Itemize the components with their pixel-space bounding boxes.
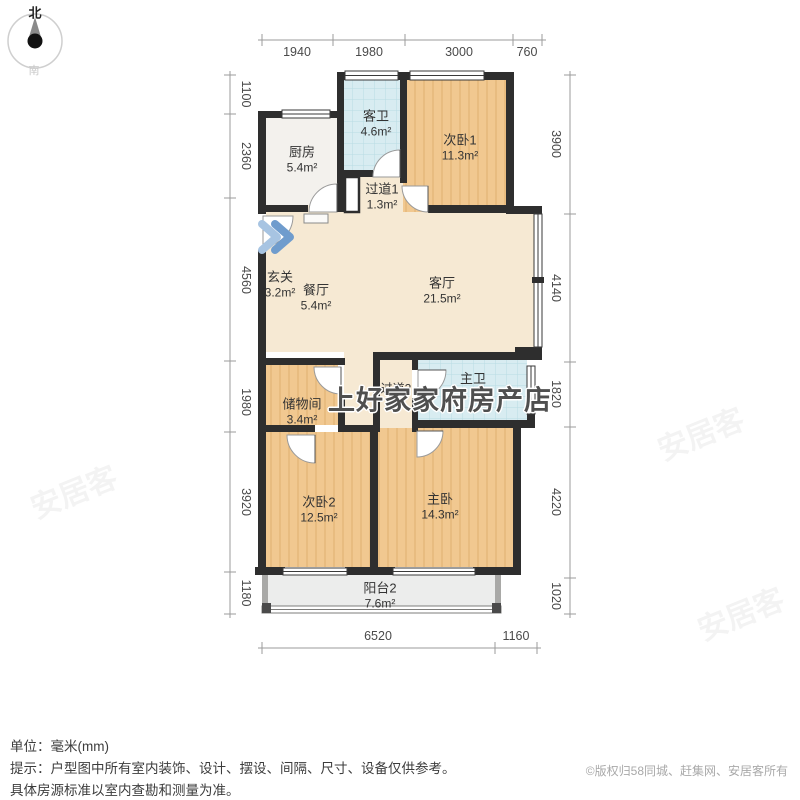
room-area: 5.4m² xyxy=(301,299,332,314)
window-bedroom1-top xyxy=(410,71,484,80)
dim-left-5: 1180 xyxy=(239,580,253,607)
compass-north-label: 北 xyxy=(28,3,41,22)
room-area: 7.6m² xyxy=(363,597,396,612)
dim-right-0: 3900 xyxy=(549,130,563,158)
room-label-dining: 餐厅 5.4m² xyxy=(301,282,332,313)
room-area: 14.3m² xyxy=(421,508,458,523)
window-kitchen-top xyxy=(282,110,330,118)
dim-top-0: 1940 xyxy=(283,45,311,59)
room-area: 21.5m² xyxy=(423,292,460,307)
room-name: 客卫 xyxy=(361,108,392,124)
room-name: 储物间 xyxy=(282,396,321,412)
room-label-storage: 储物间 3.4m² xyxy=(282,396,321,427)
room-label-living: 客厅 21.5m² xyxy=(423,275,460,306)
room-label-hallway1: 过道1 1.3m² xyxy=(365,181,398,212)
dim-right-3: 4220 xyxy=(549,488,563,516)
room-label-kitchen: 厨房 5.4m² xyxy=(287,144,318,175)
room-label-bedroom1: 次卧1 11.3m² xyxy=(442,132,478,163)
window-bedroom2-balcony xyxy=(283,568,347,575)
window-living-right xyxy=(532,214,544,347)
footer-tip-line1: 提示：户型图中所有室内装饰、设计、摆设、间隔、尺寸、设备仅供参考。 xyxy=(10,757,456,777)
room-area: 3.4m² xyxy=(282,413,321,428)
floorplan-page: 北 南 安居客 安居客 安居客 1940 1980 3000 760 6520 … xyxy=(0,0,800,800)
dim-left-3: 1980 xyxy=(239,388,253,416)
dim-left-1: 2360 xyxy=(239,142,253,170)
room-area: 1.3m² xyxy=(365,198,398,213)
dim-top-1: 1980 xyxy=(355,45,383,59)
dim-bottom-1: 1160 xyxy=(503,629,530,643)
room-name: 阳台2 xyxy=(363,580,396,596)
compass-south-label: 南 xyxy=(29,62,40,78)
shaft-pillar xyxy=(345,177,359,212)
room-area: 5.4m² xyxy=(287,161,318,176)
compass xyxy=(8,14,62,68)
dim-bottom-0: 6520 xyxy=(364,629,392,643)
room-label-entry: 玄关 3.2m² xyxy=(265,269,296,300)
dim-right-1: 4140 xyxy=(549,274,563,302)
dim-top-3: 760 xyxy=(517,45,538,59)
window-guest-bath-top xyxy=(345,71,398,80)
dining-cabinet xyxy=(304,214,328,223)
room-name: 主卧 xyxy=(421,491,458,507)
store-watermark: 上好家家府房产店 xyxy=(328,379,552,418)
room-name: 次卧1 xyxy=(442,132,478,148)
dim-top-2: 3000 xyxy=(445,45,473,59)
room-name: 厨房 xyxy=(287,144,318,160)
room-area: 4.6m² xyxy=(361,125,392,140)
room-label-master-bedroom: 主卧 14.3m² xyxy=(421,491,458,522)
footer-unit: 单位：毫米(mm) xyxy=(10,735,109,755)
footer-tip-line2: 具体房源标准以室内查勘和测量为准。 xyxy=(10,779,240,799)
dim-left-2: 4560 xyxy=(239,266,253,294)
room-label-bedroom2: 次卧2 12.5m² xyxy=(300,494,337,525)
dim-left-4: 3920 xyxy=(239,488,253,516)
copyright-notice: ©版权归58同城、赶集网、安居客所有 xyxy=(586,762,788,779)
dim-left-0: 1100 xyxy=(239,81,253,108)
dim-right-4: 1020 xyxy=(549,582,563,610)
room-name: 玄关 xyxy=(265,269,296,285)
room-name: 次卧2 xyxy=(300,494,337,510)
room-area: 11.3m² xyxy=(442,149,478,164)
room-label-balcony: 阳台2 7.6m² xyxy=(363,580,396,611)
room-name: 餐厅 xyxy=(301,282,332,298)
compass-hub xyxy=(28,34,43,49)
room-name: 过道1 xyxy=(365,181,398,197)
room-area: 12.5m² xyxy=(300,511,337,526)
window-master-balcony xyxy=(393,568,475,575)
room-name: 客厅 xyxy=(423,275,460,291)
room-area: 3.2m² xyxy=(265,286,296,301)
room-label-guest-bath: 客卫 4.6m² xyxy=(361,108,392,139)
